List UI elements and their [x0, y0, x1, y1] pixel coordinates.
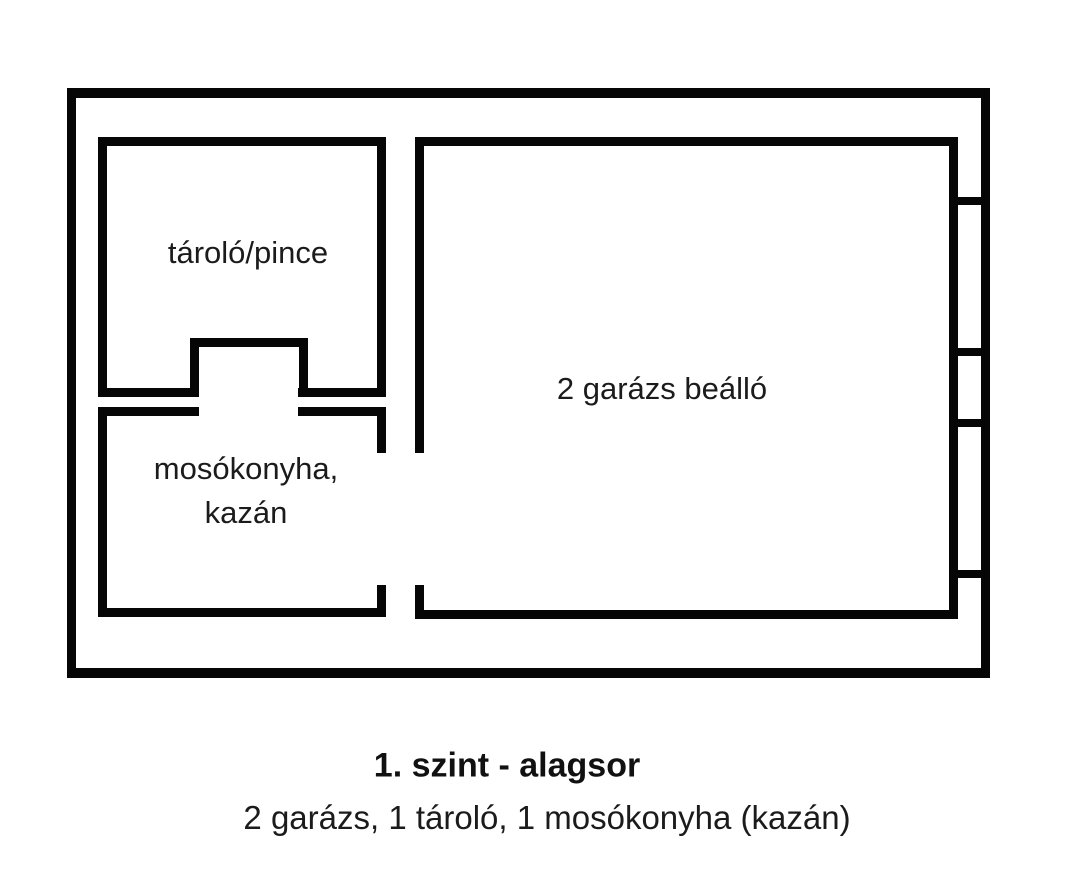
wall-laundry-top-left: [98, 407, 199, 416]
garage-room-label: 2 garázs beálló: [557, 371, 767, 407]
laundry-room-label: mosókonyha, kazán: [154, 447, 338, 535]
wall-laundry-bottom: [98, 608, 386, 617]
floor-plan-canvas: tároló/pince mosókonyha, kazán 2 garázs …: [0, 0, 1070, 894]
garage-door-tick-2: [949, 348, 990, 356]
floor-subtitle: 2 garázs, 1 tároló, 1 mosókonyha (kazán): [243, 799, 850, 837]
wall-garage-bottom: [415, 610, 957, 619]
wall-garage-right: [949, 137, 958, 619]
wall-laundry-top-right: [298, 407, 386, 416]
garage-door-tick-1: [949, 197, 990, 205]
wall-storage-right: [377, 137, 386, 397]
wall-passage-right: [299, 338, 308, 397]
wall-storage-left: [98, 137, 107, 397]
wall-outer-top: [67, 88, 990, 98]
wall-storage-bottom-left: [98, 388, 194, 397]
wall-passage-left: [190, 338, 199, 397]
wall-outer-left: [67, 88, 76, 678]
wall-outer-right: [981, 88, 990, 678]
floor-title: 1. szint - alagsor: [374, 747, 640, 786]
laundry-room-label-line2: kazán: [154, 491, 338, 535]
wall-garage-left-upper: [415, 137, 424, 453]
wall-garage-top: [415, 137, 957, 146]
wall-laundry-right-upper: [377, 407, 386, 453]
garage-door-tick-3: [949, 419, 990, 427]
wall-passage-top: [190, 338, 308, 347]
wall-storage-top: [98, 137, 386, 146]
storage-room-label: tároló/pince: [168, 235, 328, 271]
laundry-room-label-line1: mosókonyha,: [154, 447, 338, 491]
wall-laundry-left: [98, 407, 107, 617]
wall-outer-bottom: [67, 668, 990, 678]
garage-door-tick-4: [949, 570, 990, 578]
wall-storage-bottom-right: [298, 388, 386, 397]
